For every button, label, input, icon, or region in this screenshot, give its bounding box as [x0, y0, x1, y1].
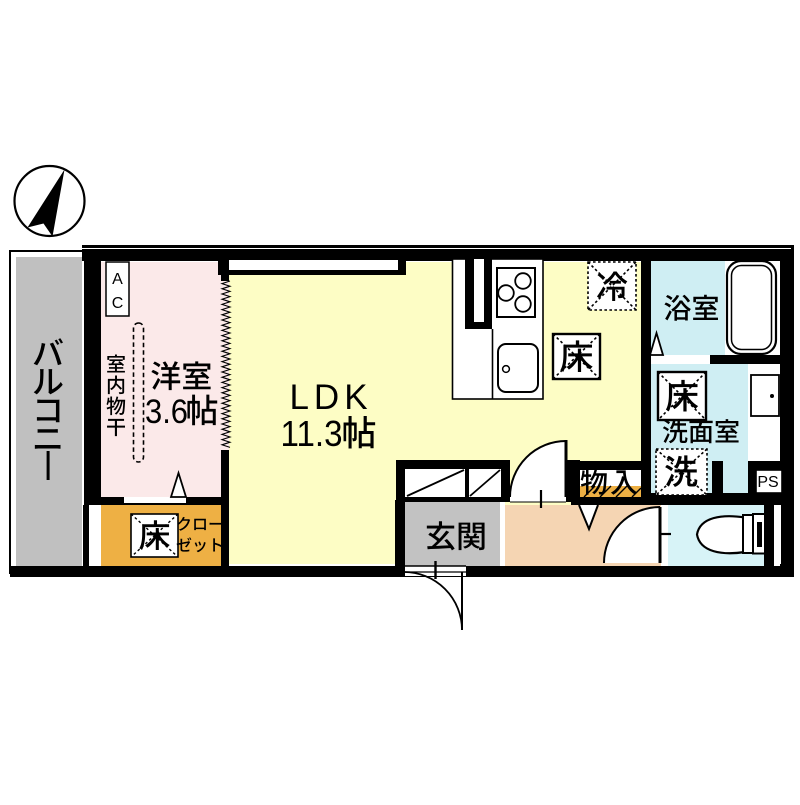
svg-text:C: C	[112, 295, 124, 312]
svg-text:A: A	[112, 271, 123, 288]
svg-text:PS: PS	[757, 474, 778, 491]
svg-text:LDK: LDK	[289, 378, 372, 417]
svg-text:3.6: 3.6	[145, 393, 188, 431]
svg-text:11.3: 11.3	[281, 413, 343, 454]
